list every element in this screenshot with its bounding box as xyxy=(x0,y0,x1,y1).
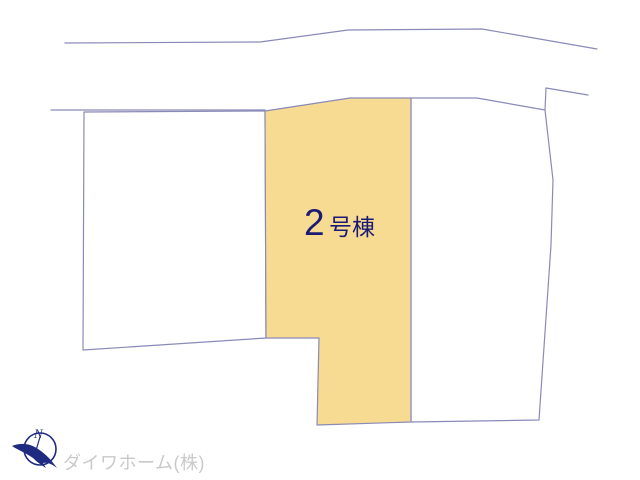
compass-north-label: N xyxy=(33,426,44,441)
building-2-label-suffix: 号棟 xyxy=(329,214,375,240)
parcel-building-2 xyxy=(265,98,411,425)
site-plan-page: 2 号棟 N ダイワホーム(株) ダイワホーム(株) xyxy=(0,0,640,480)
boundary-flag-line xyxy=(545,88,588,110)
company-watermark-text: ダイワホーム(株) xyxy=(63,453,205,473)
parcel-right xyxy=(411,98,553,422)
road-upper-edge-line xyxy=(65,29,597,49)
company-watermark: ダイワホーム(株) ダイワホーム(株) xyxy=(63,453,206,474)
compass-icon: N xyxy=(12,426,57,468)
site-plan-svg: 2 号棟 N ダイワホーム(株) ダイワホーム(株) xyxy=(0,0,640,480)
building-2-label-number: 2 xyxy=(304,202,325,243)
parcel-left xyxy=(83,111,266,350)
